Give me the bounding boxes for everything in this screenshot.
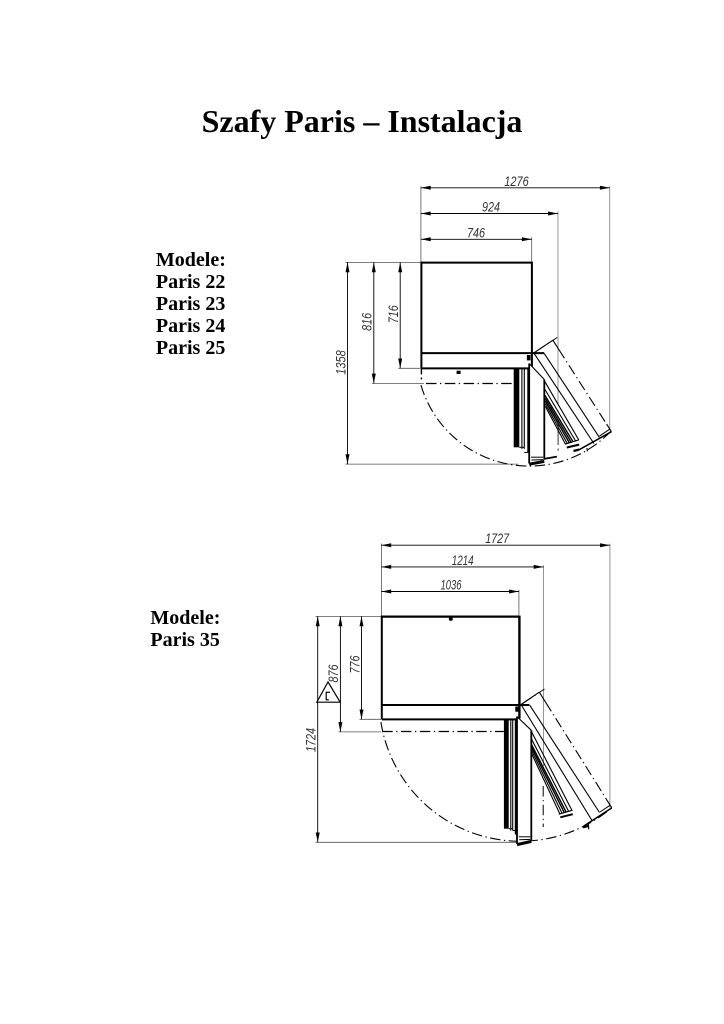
- svg-text:924: 924: [482, 200, 500, 215]
- svg-text:876: 876: [326, 664, 341, 682]
- svg-text:1724: 1724: [304, 728, 319, 752]
- svg-text:1036: 1036: [441, 578, 462, 593]
- svg-text:1276: 1276: [504, 174, 529, 189]
- svg-text:1214: 1214: [452, 553, 474, 568]
- svg-text:816: 816: [360, 313, 375, 331]
- svg-text:1358: 1358: [333, 350, 348, 375]
- svg-text:1727: 1727: [485, 531, 509, 546]
- svg-text:746: 746: [467, 225, 485, 240]
- svg-text:776: 776: [347, 655, 362, 673]
- svg-text:716: 716: [386, 305, 401, 323]
